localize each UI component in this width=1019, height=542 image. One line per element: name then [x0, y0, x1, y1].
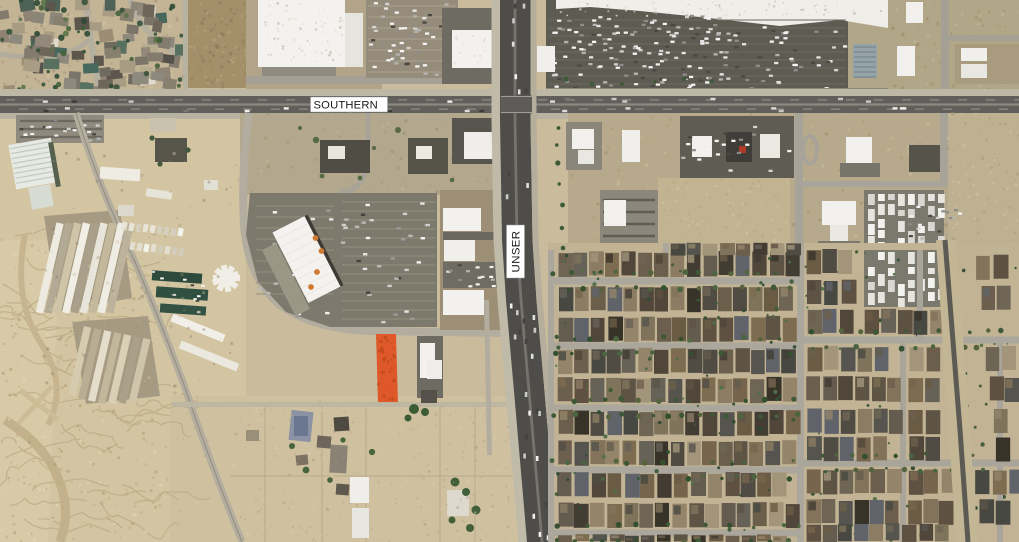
svg-text:UNSER: UNSER [511, 231, 523, 273]
svg-text:SOUTHERN: SOUTHERN [314, 100, 378, 112]
